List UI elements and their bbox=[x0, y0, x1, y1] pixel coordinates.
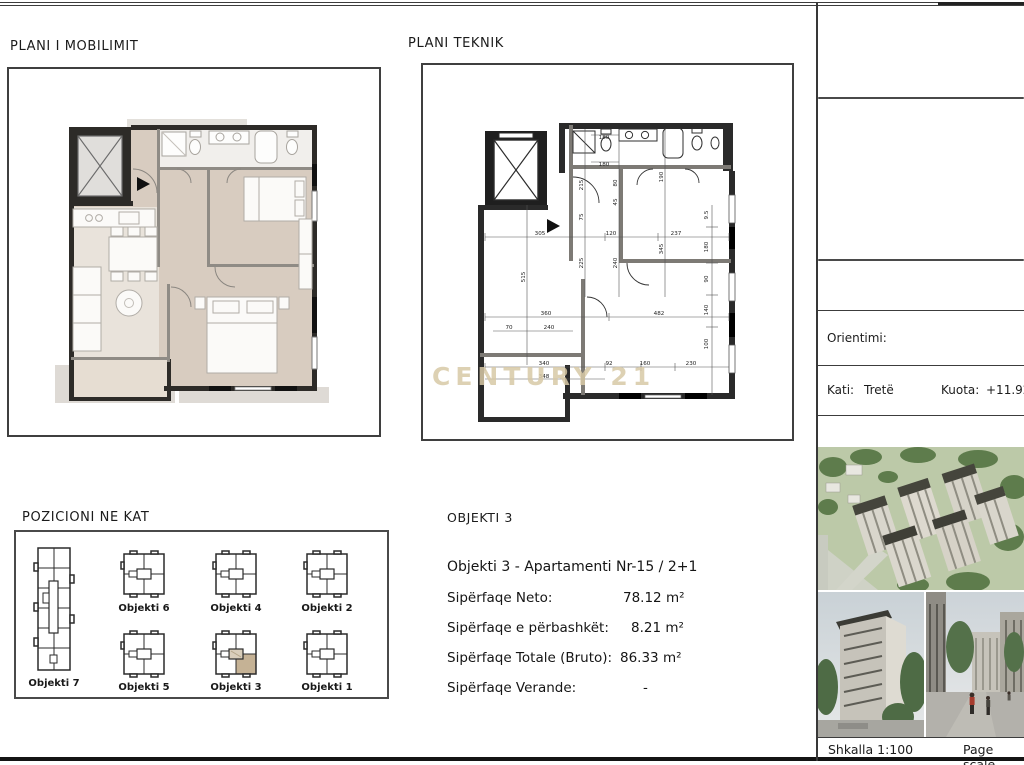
info-label: Sipërfaqe Neto: bbox=[447, 590, 552, 606]
bed-small bbox=[244, 177, 306, 221]
titleblock-line-2 bbox=[818, 259, 1024, 261]
svg-text:9.5: 9.5 bbox=[704, 210, 710, 219]
scale-label: Shkalla 1:100 bbox=[828, 742, 913, 757]
svg-text:360: 360 bbox=[541, 311, 552, 317]
info-value: - bbox=[643, 680, 648, 696]
titleblock-line-1 bbox=[818, 97, 1024, 99]
svg-text:215: 215 bbox=[579, 179, 585, 190]
svg-text:237: 237 bbox=[671, 231, 682, 237]
info-label: Sipërfaqe Verande: bbox=[447, 680, 576, 696]
position-label: Objekti 7 bbox=[28, 678, 80, 689]
position-diagram-objekti-6 bbox=[118, 548, 170, 600]
svg-text:80: 80 bbox=[613, 179, 619, 187]
building-render-left-image bbox=[818, 592, 924, 737]
position-diagram-objekti-3 bbox=[210, 628, 262, 680]
position-diagram-objekti-1 bbox=[301, 628, 353, 680]
info-row-perbashket: Sipërfaqe e përbashkët: 8.21 m² bbox=[447, 620, 787, 640]
kuota-value: +11.92 bbox=[986, 383, 1024, 397]
elevator-shaft bbox=[69, 127, 131, 205]
aerial-render-image bbox=[818, 447, 1024, 590]
position-label: Objekti 6 bbox=[118, 603, 170, 614]
info-value: 86.33 m² bbox=[620, 650, 682, 666]
position-label: Objekti 5 bbox=[118, 682, 170, 693]
technical-plan-title: PLANI TEKNIK bbox=[408, 36, 504, 51]
info-label: Sipërfaqe Totale (Bruto): bbox=[447, 650, 612, 666]
info-label: Sipërfaqe e përbashkët: bbox=[447, 620, 609, 636]
position-section-title: POZICIONI NE KAT bbox=[22, 510, 149, 525]
titleblock-line-4 bbox=[818, 365, 1024, 366]
position-label: Objekti 4 bbox=[210, 603, 262, 614]
svg-text:140: 140 bbox=[704, 304, 710, 315]
svg-text:100: 100 bbox=[704, 338, 710, 349]
titleblock-line-6 bbox=[818, 737, 1024, 738]
svg-text:190: 190 bbox=[659, 171, 665, 182]
sofa bbox=[73, 267, 101, 351]
kuota-label: Kuota: bbox=[941, 383, 979, 397]
sheet-bottom-border bbox=[0, 757, 1024, 761]
info-value: 8.21 m² bbox=[631, 620, 684, 636]
orientimi-label: Orientimi: bbox=[827, 331, 887, 345]
door-arcs bbox=[573, 169, 699, 317]
svg-text:70: 70 bbox=[505, 325, 513, 331]
position-diagram-objekti-7 bbox=[30, 543, 78, 675]
svg-text:240: 240 bbox=[613, 257, 619, 268]
info-row-neto: Sipërfaqe Neto: 78.12 m² bbox=[447, 590, 787, 610]
position-box: Objekti 7 Objekti 6 bbox=[14, 530, 389, 699]
kati-label: Kati: bbox=[827, 383, 854, 397]
svg-text:180: 180 bbox=[599, 135, 610, 141]
svg-text:225: 225 bbox=[579, 257, 585, 268]
furnished-floor-plan bbox=[9, 69, 379, 435]
bath-fixtures bbox=[573, 128, 719, 158]
kati-value: Tretë bbox=[864, 383, 894, 397]
plan-sheet: PLANI I MOBILIMIT PLANI TEKNIK POZICIONI… bbox=[0, 0, 1024, 765]
bed-large bbox=[195, 297, 289, 373]
dining-table bbox=[109, 227, 157, 281]
svg-text:305: 305 bbox=[535, 231, 546, 237]
position-label: Objekti 3 bbox=[210, 682, 262, 693]
svg-text:482: 482 bbox=[654, 311, 665, 317]
furnished-plan-box bbox=[7, 67, 381, 437]
svg-text:45: 45 bbox=[613, 198, 619, 206]
svg-text:120: 120 bbox=[606, 231, 617, 237]
info-row-totale: Sipërfaqe Totale (Bruto): 86.33 m² bbox=[447, 650, 787, 670]
objekti-header: OBJEKTI 3 bbox=[447, 510, 513, 525]
svg-text:75: 75 bbox=[579, 213, 585, 221]
sheet-top-border-inner bbox=[0, 5, 1024, 6]
position-diagram-objekti-5 bbox=[118, 628, 170, 680]
svg-text:345: 345 bbox=[659, 243, 665, 254]
elevator-shaft bbox=[485, 131, 547, 209]
svg-text:240: 240 bbox=[544, 325, 555, 331]
svg-text:180: 180 bbox=[599, 162, 610, 168]
sheet-top-border-outer bbox=[0, 2, 1024, 3]
apartment-name: Objekti 3 - Apartamenti Nr-15 / 2+1 bbox=[447, 559, 697, 575]
svg-text:515: 515 bbox=[521, 271, 527, 282]
position-label: Objekti 2 bbox=[301, 603, 353, 614]
watermark: CENTURY 21 bbox=[432, 362, 672, 391]
svg-text:90: 90 bbox=[704, 275, 710, 283]
sheet-top-border-smudge bbox=[938, 2, 1024, 5]
info-row-verande: Sipërfaqe Verande: - bbox=[447, 680, 787, 700]
page-scale-label: Page scale bbox=[963, 742, 1024, 765]
position-diagram-objekti-4 bbox=[210, 548, 262, 600]
position-label: Objekti 1 bbox=[301, 682, 353, 693]
titleblock-line-5 bbox=[818, 415, 1024, 416]
position-diagram-objekti-2 bbox=[301, 548, 353, 600]
info-value: 78.12 m² bbox=[623, 590, 685, 606]
coffee-table bbox=[116, 290, 142, 316]
svg-text:180: 180 bbox=[704, 241, 710, 252]
svg-text:230: 230 bbox=[686, 361, 697, 367]
street-render-right-image bbox=[926, 592, 1024, 737]
entry-arrow-icon bbox=[547, 219, 560, 233]
titleblock-line-3 bbox=[818, 310, 1024, 311]
furnished-plan-title: PLANI I MOBILIMIT bbox=[10, 39, 138, 54]
